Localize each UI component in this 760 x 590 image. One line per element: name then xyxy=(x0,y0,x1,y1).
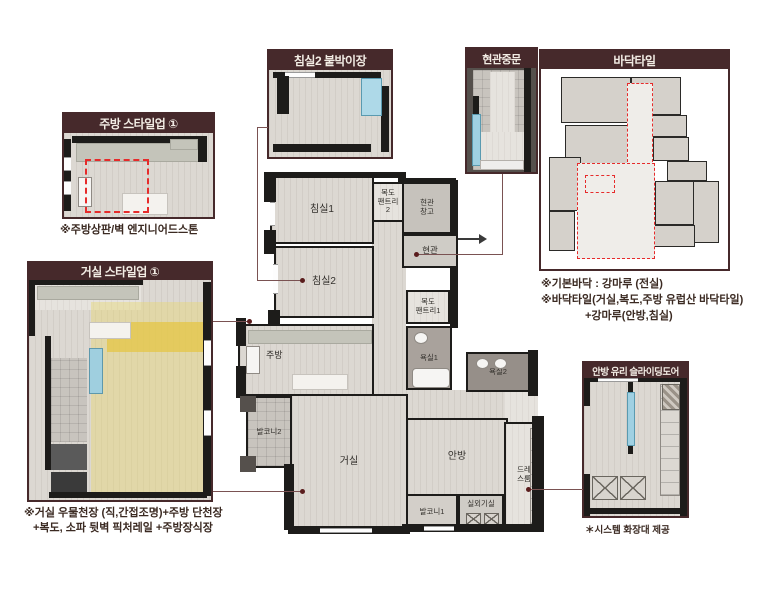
storage-block xyxy=(51,444,87,470)
wall xyxy=(203,282,211,496)
room-entry-storage: 현관 창고 xyxy=(402,182,452,234)
tile-area-corridor xyxy=(627,83,653,167)
living-styleup-mini-plan xyxy=(29,280,211,500)
toilet xyxy=(414,332,428,344)
mini-bath1 xyxy=(653,137,689,161)
wall-pier xyxy=(240,456,256,472)
room-label-kitchen: 주방 xyxy=(266,350,283,360)
window xyxy=(204,340,211,366)
room-label-master: 안방 xyxy=(448,451,466,463)
leader-bedroom2-closet xyxy=(257,127,258,281)
callout-entrance-door-title: 현관중문 xyxy=(467,49,536,68)
master-sliding-mini-plan xyxy=(584,378,687,516)
storage-block xyxy=(51,472,87,494)
kitchen-styleup-caption: ※주방상판/벽 엔지니어드스톤 xyxy=(60,221,198,237)
window xyxy=(64,181,71,195)
mini-bath2 xyxy=(667,161,707,181)
bathtub xyxy=(412,368,450,388)
callout-bedroom2-closet: 침실2 붙박이장 xyxy=(267,49,393,159)
wall xyxy=(29,280,35,336)
mini-bedroom1 xyxy=(561,77,631,123)
tile-area-kitchen-notch xyxy=(585,175,615,193)
wall xyxy=(49,492,207,498)
wall xyxy=(381,86,389,152)
entry-hall xyxy=(480,132,524,160)
room-label-bedroom2: 침실2 xyxy=(312,276,336,288)
table xyxy=(170,139,198,150)
wall xyxy=(528,350,538,396)
wall xyxy=(450,180,458,236)
wall xyxy=(398,178,456,184)
vanity-unit xyxy=(620,476,646,500)
callout-kitchen-styleup: 주방 스타일업 ① xyxy=(62,112,215,219)
leader-dot-kitchen xyxy=(247,319,252,324)
leader-entrance-door xyxy=(502,174,503,255)
room-label-ac: 실외기실 xyxy=(460,500,502,509)
leader-living-room xyxy=(213,491,303,492)
kitchen-island xyxy=(292,374,348,390)
room-living: 거실 xyxy=(290,394,408,530)
kitchen-island xyxy=(89,322,131,339)
entry-arrow-line xyxy=(458,238,480,240)
window xyxy=(273,264,278,294)
callout-kitchen-styleup-title: 주방 스타일업 ① xyxy=(64,114,213,133)
room-entry: 현관 xyxy=(402,234,458,268)
room-label-living: 거실 xyxy=(340,456,358,468)
mini-dress xyxy=(693,181,719,243)
room-label-balcony2: 발코니2 xyxy=(257,428,282,437)
wall-pier xyxy=(240,396,256,412)
room-label-pantry1: 복도 팬트리1 xyxy=(416,298,441,315)
kitchen-counter xyxy=(248,330,372,344)
entry-corridor xyxy=(490,72,515,132)
wall xyxy=(236,318,246,346)
corridor xyxy=(372,222,406,398)
window xyxy=(270,202,275,226)
wall xyxy=(198,136,207,162)
room-label-pantry2: 복도 팬트리 2 xyxy=(378,189,399,215)
wardrobe-hatch xyxy=(662,384,680,410)
room-label-balcony1: 발코니1 xyxy=(420,508,445,517)
callout-master-sliding-door-title: 안방 유리 슬라이딩도어 xyxy=(584,363,687,378)
wall xyxy=(450,268,458,328)
living-caption-line1: ※거실 우물천장 (직,간접조명)+주방 단천장 xyxy=(24,506,223,521)
wall xyxy=(680,378,687,516)
callout-living-styleup-title: 거실 스타일업 ① xyxy=(29,263,211,280)
room-bedroom1: 침실1 xyxy=(270,176,374,244)
leader-bedroom2-closet xyxy=(257,280,303,281)
living-styleup-caption: ※거실 우물천장 (직,간접조명)+주방 단천장 +복도, 소파 뒷벽 픽처레일… xyxy=(24,506,223,536)
kitchen-counter xyxy=(37,286,139,300)
wall xyxy=(236,366,246,398)
room-pantry1: 복도 팬트리1 xyxy=(406,290,450,324)
living-caption-line2: +복도, 소파 뒷벽 픽처레일 +주방장식장 xyxy=(24,521,223,536)
room-label-bath2: 욕실2 xyxy=(489,368,507,377)
main-floor-plan: 침실1 복도 팬트리 2 현관 창고 현관 침실2 복도 팬트리1 욕실1 주방… xyxy=(236,168,588,534)
highlight-builtin-closet xyxy=(361,78,382,116)
window xyxy=(320,528,372,533)
room-label-entry-storage: 현관 창고 xyxy=(420,199,434,216)
callout-living-styleup: 거실 스타일업 ① xyxy=(27,261,213,502)
callout-master-sliding-door: 안방 유리 슬라이딩도어 xyxy=(582,361,689,518)
wall xyxy=(264,172,276,202)
callout-floor-tile-title: 바닥타일 xyxy=(541,51,728,69)
leader-entrance-door xyxy=(417,254,503,255)
room-pantry2: 복도 팬트리 2 xyxy=(372,182,404,222)
wall xyxy=(64,139,71,211)
leader-dot-living xyxy=(300,489,305,494)
wall xyxy=(277,76,289,114)
room-bedroom2: 침실2 xyxy=(274,246,374,318)
vanity-unit xyxy=(592,476,618,500)
leader-dot-dress xyxy=(526,487,531,492)
entry-arrow-icon xyxy=(479,234,487,244)
master-sliding-caption: ＊시스템 화장대 제공 xyxy=(585,522,670,536)
bedroom2-closet-mini-plan xyxy=(269,70,391,157)
sink xyxy=(476,358,489,369)
appliance xyxy=(246,346,260,374)
wall xyxy=(29,280,143,285)
leader-dot-entry xyxy=(414,252,419,257)
leader-master-door xyxy=(529,489,583,490)
wall xyxy=(268,310,280,324)
wall xyxy=(276,172,406,178)
room-kitchen: 주방 xyxy=(238,324,374,396)
wall xyxy=(588,508,682,514)
balcony-zone xyxy=(51,358,87,442)
leader-living-kitchen xyxy=(213,321,251,322)
room-label-dress: 드레 스룸 xyxy=(517,466,531,483)
window xyxy=(424,526,454,531)
entrance-door-mini-plan xyxy=(467,68,536,172)
highlight-blue-strip xyxy=(89,348,103,394)
window xyxy=(285,72,315,78)
window xyxy=(64,157,71,171)
callout-entrance-door: 현관중문 xyxy=(465,47,538,174)
wall xyxy=(273,144,371,152)
highlight-glass-sliding-door xyxy=(627,392,635,446)
wall xyxy=(264,230,276,254)
wall xyxy=(524,68,531,172)
leader-bedroom2-closet xyxy=(257,127,268,128)
kitchen-styleup-mini-plan xyxy=(64,133,213,217)
callout-bedroom2-closet-title: 침실2 붙박이장 xyxy=(269,51,391,70)
room-label-bedroom1: 침실1 xyxy=(310,204,334,216)
wall xyxy=(284,464,294,530)
highlight-middle-door xyxy=(472,114,481,166)
wall xyxy=(473,96,479,114)
room-bath1: 욕실1 xyxy=(406,326,452,390)
highlight-dashed-region xyxy=(85,159,149,213)
room-bath2: 욕실2 xyxy=(466,352,530,392)
room-label-bath1: 욕실1 xyxy=(420,354,438,363)
window xyxy=(204,410,211,436)
wall xyxy=(532,416,544,530)
sink xyxy=(494,358,507,369)
leader-dot-bedroom2 xyxy=(300,278,305,283)
room-master: 안방 xyxy=(406,418,508,496)
wall xyxy=(45,336,51,470)
